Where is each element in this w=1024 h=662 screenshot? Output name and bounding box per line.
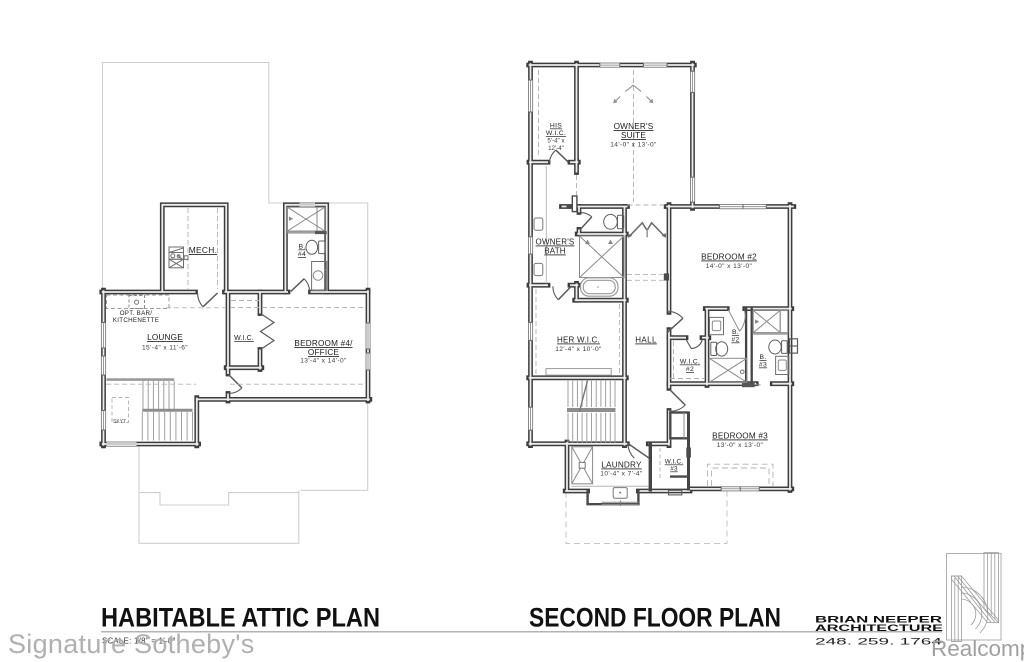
svg-text:HALL: HALL xyxy=(635,336,657,345)
svg-text:13'-4" x 14'-0": 13'-4" x 14'-0" xyxy=(300,358,347,365)
svg-text:Realcomp: Realcomp xyxy=(931,636,1024,661)
svg-text:SUITE: SUITE xyxy=(621,131,646,140)
svg-text:OPT. BAR/: OPT. BAR/ xyxy=(120,310,153,317)
svg-text:12'-4": 12'-4" xyxy=(548,145,564,152)
svg-text:14'-0" x 13'-0": 14'-0" x 13'-0" xyxy=(610,142,657,149)
svg-text:BEDROOM #2: BEDROOM #2 xyxy=(701,253,757,262)
svg-text:OWNER'S: OWNER'S xyxy=(536,238,575,247)
svg-text:W.I.C.: W.I.C. xyxy=(665,459,684,466)
svg-text:#2: #2 xyxy=(686,366,694,373)
svg-text:B.: B. xyxy=(759,354,766,361)
svg-text:13'-0" x 13'-0": 13'-0" x 13'-0" xyxy=(717,442,764,449)
svg-text:#3: #3 xyxy=(670,466,678,473)
svg-text:BATH: BATH xyxy=(544,247,566,256)
svg-text:OFFICE: OFFICE xyxy=(308,348,340,357)
svg-text:Signature Sotheby's: Signature Sotheby's xyxy=(8,629,255,659)
svg-text:#3: #3 xyxy=(759,362,767,369)
svg-text:OWNER'S: OWNER'S xyxy=(614,122,654,131)
svg-text:KITCHENETTE: KITCHENETTE xyxy=(113,317,159,324)
svg-text:W.I.C.: W.I.C. xyxy=(234,335,254,342)
svg-text:10'-4" x 7'-4": 10'-4" x 7'-4" xyxy=(600,471,643,478)
svg-text:B.: B. xyxy=(298,244,305,251)
svg-text:#4: #4 xyxy=(298,251,306,258)
svg-text:5'-4" x: 5'-4" x xyxy=(547,138,565,145)
svg-text:HIS: HIS xyxy=(550,123,562,130)
svg-text:SKYT.: SKYT. xyxy=(113,419,127,425)
svg-text:ARCHITECTURE: ARCHITECTURE xyxy=(815,623,943,633)
svg-text:SECOND FLOOR PLAN: SECOND FLOOR PLAN xyxy=(529,603,781,633)
svg-text:W.I.C.: W.I.C. xyxy=(680,359,700,366)
svg-text:MECH.: MECH. xyxy=(189,245,218,255)
svg-text:BEDROOM #4/: BEDROOM #4/ xyxy=(294,339,353,348)
svg-text:W.I.C.: W.I.C. xyxy=(546,130,566,137)
svg-text:HABITABLE ATTIC PLAN: HABITABLE ATTIC PLAN xyxy=(101,603,380,633)
svg-text:BEDROOM #3: BEDROOM #3 xyxy=(712,432,768,441)
svg-text:LAUNDRY: LAUNDRY xyxy=(601,461,642,470)
svg-text:HER W.I.C.: HER W.I.C. xyxy=(557,336,600,345)
svg-text:14'-0" x 13'-0": 14'-0" x 13'-0" xyxy=(706,263,753,270)
svg-text:15'-4" x 11'-6": 15'-4" x 11'-6" xyxy=(142,345,188,352)
svg-text:248. 259. 1764: 248. 259. 1764 xyxy=(815,637,942,648)
svg-text:#2: #2 xyxy=(731,337,739,344)
svg-text:12'-4" x 10'-0": 12'-4" x 10'-0" xyxy=(555,346,602,353)
svg-text:B.: B. xyxy=(732,329,739,336)
svg-text:LOUNGE: LOUNGE xyxy=(147,333,183,342)
